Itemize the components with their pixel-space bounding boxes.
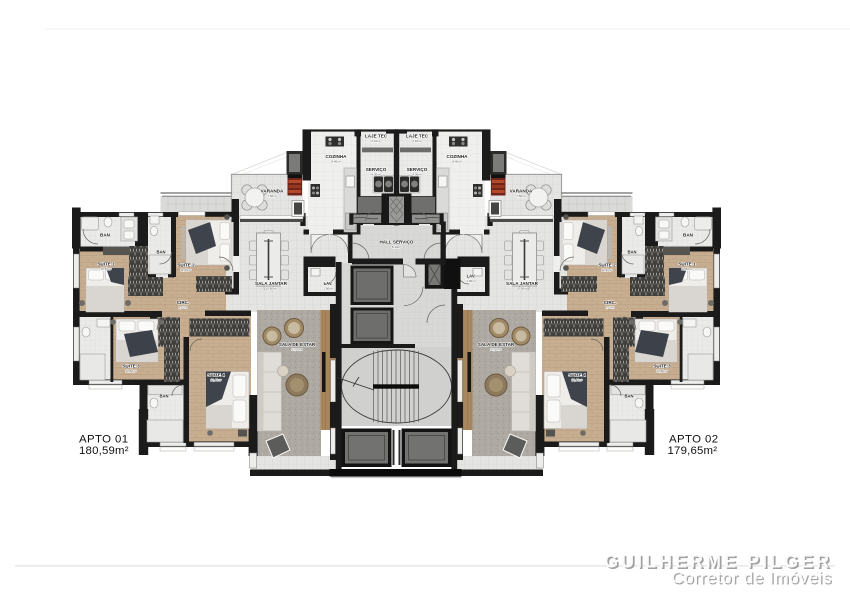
svg-text:SALA JANTAR: SALA JANTAR xyxy=(255,281,288,286)
svg-text:10,80m²: 10,80m² xyxy=(125,369,136,373)
svg-text:LAJE TEC: LAJE TEC xyxy=(365,134,388,139)
svg-text:SUITE 2: SUITE 2 xyxy=(177,263,195,268)
svg-text:COZINHA: COZINHA xyxy=(447,154,469,159)
svg-text:COZINHA: COZINHA xyxy=(326,154,348,159)
svg-text:10,90m²: 10,90m² xyxy=(516,287,527,291)
svg-text:LAJE TEC: LAJE TEC xyxy=(406,134,429,139)
svg-text:12,40m²: 12,40m² xyxy=(571,378,582,382)
svg-text:10,50m²: 10,50m² xyxy=(100,267,111,271)
svg-text:APTO 01: APTO 01 xyxy=(79,434,128,446)
svg-text:7,50m²: 7,50m² xyxy=(516,194,525,198)
svg-text:2,10m²: 2,10m² xyxy=(371,139,380,143)
svg-text:7,50m²: 7,50m² xyxy=(267,194,276,198)
svg-text:SERVIÇO: SERVIÇO xyxy=(407,167,428,172)
svg-text:4,30m²: 4,30m² xyxy=(412,173,421,177)
svg-text:SALA DE ESTAR: SALA DE ESTAR xyxy=(478,342,515,347)
svg-text:8,40m²: 8,40m² xyxy=(452,160,461,164)
svg-text:HALL SERVIÇO: HALL SERVIÇO xyxy=(379,240,413,245)
svg-text:1,90m²: 1,90m² xyxy=(323,287,332,291)
svg-text:LAV.: LAV. xyxy=(467,274,476,279)
svg-text:SUITE 3: SUITE 3 xyxy=(122,364,140,369)
svg-text:BAN: BAN xyxy=(624,394,633,399)
svg-text:11,20m²: 11,20m² xyxy=(181,268,192,272)
svg-text:4,30m²: 4,30m² xyxy=(371,173,380,177)
svg-text:SERVIÇO: SERVIÇO xyxy=(366,167,387,172)
svg-text:LAV.: LAV. xyxy=(324,281,333,286)
svg-text:SUITE 2: SUITE 2 xyxy=(598,263,616,268)
svg-text:11,20m²: 11,20m² xyxy=(602,268,613,272)
svg-text:APTO 02: APTO 02 xyxy=(669,434,718,446)
svg-text:SUITE 3: SUITE 3 xyxy=(653,364,671,369)
svg-text:SUITE 4: SUITE 4 xyxy=(568,373,586,378)
svg-text:180,59m²: 180,59m² xyxy=(79,445,129,457)
svg-text:SUITE 1: SUITE 1 xyxy=(97,262,115,267)
svg-text:4,10m²: 4,10m² xyxy=(178,306,187,310)
svg-text:12,40m²: 12,40m² xyxy=(210,378,221,382)
svg-text:BAN: BAN xyxy=(159,394,168,399)
svg-text:17,20m²: 17,20m² xyxy=(490,348,501,352)
svg-text:17,20m²: 17,20m² xyxy=(291,348,302,352)
svg-text:4,10m²: 4,10m² xyxy=(605,306,614,310)
svg-text:8,40m²: 8,40m² xyxy=(331,160,340,164)
svg-text:VARANDA: VARANDA xyxy=(510,189,533,194)
svg-text:10,90m²: 10,90m² xyxy=(265,287,276,291)
svg-text:SALA DE ESTAR: SALA DE ESTAR xyxy=(279,342,316,347)
svg-text:CIRC.: CIRC. xyxy=(604,300,617,305)
svg-text:SALA JANTAR: SALA JANTAR xyxy=(506,281,539,286)
svg-text:BAN: BAN xyxy=(100,233,111,238)
svg-text:SUITE 4: SUITE 4 xyxy=(207,373,225,378)
svg-text:10,80m²: 10,80m² xyxy=(656,369,667,373)
svg-text:179,65m²: 179,65m² xyxy=(668,445,718,457)
svg-text:2,10m²: 2,10m² xyxy=(412,139,421,143)
svg-text:Corretor de Imóveis: Corretor de Imóveis xyxy=(671,568,832,587)
svg-text:BAN: BAN xyxy=(156,250,165,255)
svg-text:SUITE 1: SUITE 1 xyxy=(678,262,696,267)
svg-text:CIRC.: CIRC. xyxy=(177,300,190,305)
svg-text:10,50m²: 10,50m² xyxy=(681,267,692,271)
svg-text:BAN: BAN xyxy=(627,250,636,255)
svg-text:VARANDA: VARANDA xyxy=(261,189,284,194)
svg-text:8,10m²: 8,10m² xyxy=(392,245,401,249)
svg-text:1,90m²: 1,90m² xyxy=(466,279,475,283)
svg-text:BAN: BAN xyxy=(683,233,694,238)
